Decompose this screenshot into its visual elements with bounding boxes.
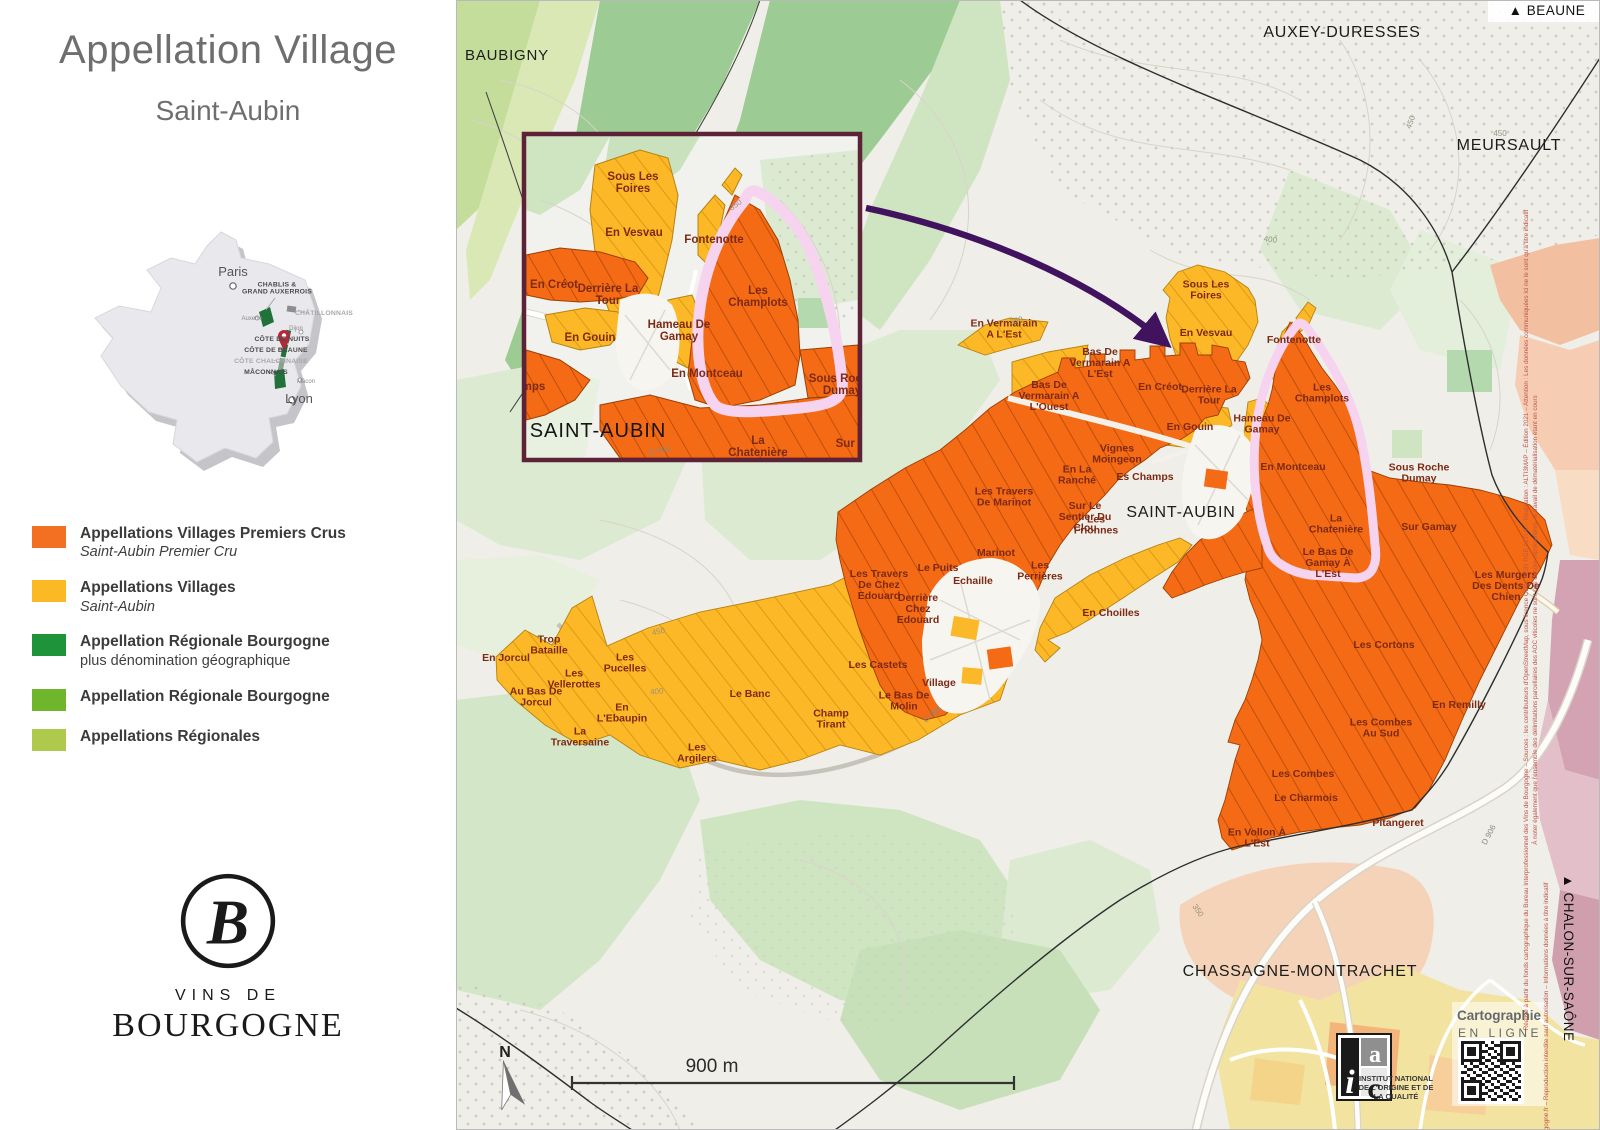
map-label: SAINT-AUBIN: [530, 420, 667, 442]
legend-sublabel: Saint-Aubin Premier Cru: [80, 543, 346, 562]
map-label: Marinot: [977, 547, 1015, 559]
map-label: En Gouin: [564, 332, 615, 344]
svg-text:B: B: [206, 887, 249, 957]
map-label: 450: [1493, 129, 1507, 138]
legend-label: Appellations Villages: [80, 578, 236, 597]
legend-label: Appellation Régionale Bourgogne: [80, 632, 330, 651]
map-label: Les Cortons: [1353, 639, 1414, 651]
legend-sublabel: plus dénomination géographique: [80, 652, 330, 671]
map-label: 900 m: [686, 1056, 739, 1077]
legend-item-villages: Appellations Villages Saint-Aubin: [32, 578, 432, 616]
map-label: En Choilles: [1082, 607, 1139, 619]
map-label: N: [499, 1044, 511, 1061]
map-label: En Vesvau: [605, 227, 663, 239]
legend-sublabel: Saint-Aubin: [80, 598, 236, 617]
map-label: ▲ BEAUNE: [1509, 3, 1586, 18]
map-label: Es Champs: [1116, 471, 1173, 483]
map-label: Echaille: [953, 575, 993, 587]
legend-item-regionale-denomination: Appellation Régionale Bourgogne plus dén…: [32, 632, 432, 670]
map-label: Les TraversDe Marinot: [975, 486, 1034, 509]
map-label: En Gouin: [1167, 421, 1214, 433]
map-label: Fontenotte: [684, 234, 743, 246]
map-label: En Montceau: [1260, 461, 1325, 473]
map-label: CÔTE DE NUITS: [254, 334, 309, 343]
map-label: Fontenotte: [1267, 334, 1321, 346]
logo-line2: BOURGOGNE: [0, 1007, 456, 1045]
map-label: CÔTE DE BEAUNE: [244, 345, 308, 354]
map-label: En Créot: [530, 279, 578, 291]
map-label: À noter également que l'ensemble des dél…: [1530, 395, 1539, 845]
map-label: En Jorcul: [482, 652, 530, 664]
map-label: En Vesvau: [1180, 327, 1233, 339]
legend-item-regionales: Appellations Régionales: [32, 727, 432, 751]
map-label: Le Charmois: [1274, 792, 1338, 804]
map-label: Les Combes: [1272, 768, 1335, 780]
france-locator-map: ParisLyonCHABLIS &GRAND AUXERROISCHÂTILL…: [73, 218, 383, 510]
map-label: Lyon: [285, 391, 313, 406]
map-label: Le Banc: [730, 688, 771, 700]
legend-swatch-regionale: [32, 689, 66, 711]
map-label: Dijon: [289, 326, 303, 332]
map-label: En Montceau: [671, 368, 743, 380]
map-label: Pitangeret: [1372, 817, 1424, 829]
legend-swatch-regionale-denomination: [32, 634, 66, 656]
poster: Appellation Village Saint-Aubin: [0, 0, 1600, 1130]
map-label: En Remilly: [1432, 699, 1486, 711]
map-label: Village: [922, 677, 956, 689]
map-label: Mâcon: [297, 379, 315, 385]
legend-label: Appellations Villages Premiers Crus: [80, 524, 346, 543]
legend-item-premier-cru: Appellations Villages Premiers Crus Sain…: [32, 524, 432, 562]
legend-label: Appellation Régionale Bourgogne: [80, 687, 330, 706]
inset-detail-map: Sous LesFoiresEn VesvauEn CréotDerrière …: [483, 134, 897, 460]
legend: Appellations Villages Premiers Crus Sain…: [32, 524, 432, 767]
map-label: © www.vins-bourgogne.fr – Reproduction i…: [1542, 882, 1550, 1130]
map-label: Réalisé à partir du fonds cartographique…: [1521, 209, 1530, 1030]
map-label: CÔTE CHALONNAISE: [234, 356, 308, 365]
map-label: a: [1369, 1042, 1381, 1068]
map-label: MEURSAULT: [1457, 137, 1562, 154]
map-label: ChampTirant: [813, 708, 849, 731]
paris-dot: [230, 283, 236, 289]
map-label: Sur Gamay: [1401, 521, 1457, 533]
map-label: ▲ CHALON-SUR-SAÔNE: [1561, 874, 1576, 1041]
logo-line1: VINS DE: [0, 987, 456, 1005]
qr-code: [1458, 1038, 1524, 1104]
map-label: 400: [650, 686, 665, 696]
legend-swatch-villages: [32, 580, 66, 602]
map-label: CHASSAGNE-MONTRACHET: [1183, 963, 1418, 980]
map-label: MÂCONNAIS: [244, 367, 288, 376]
legend-swatch-premier-cru: [32, 526, 66, 548]
map-label: BAUBIGNY: [465, 47, 549, 64]
legend-label: Appellations Régionales: [80, 727, 260, 746]
info-panel: Appellation Village Saint-Aubin: [0, 0, 456, 1130]
vins-de-bourgogne-logo: B VINS DE BOURGOGNE: [0, 870, 456, 1045]
map-label: Les Castets: [849, 659, 908, 671]
legend-item-regionale: Appellation Régionale Bourgogne: [32, 687, 432, 711]
map-label: CHÂTILLONNAIS: [295, 308, 353, 317]
map-label: 400: [1263, 234, 1278, 245]
map-label: i: [1345, 1064, 1355, 1101]
saint-aubin-parcel-map: BAUBIGNYAUXEY-DURESSESMEURSAULTSAINT-AUB…: [456, 0, 1600, 1130]
map-label: En LaRanché: [1058, 464, 1096, 487]
map-label: Le Puits: [918, 562, 959, 574]
map-label: En Créot: [1138, 381, 1182, 393]
map-label: Paris: [218, 264, 248, 279]
map-label: SAINT-AUBIN: [1126, 504, 1235, 521]
map-label: c: [1367, 1072, 1380, 1105]
page-title: Appellation Village: [10, 28, 446, 73]
page-subtitle: Saint-Aubin: [10, 95, 446, 127]
map-label: Auxerre: [241, 316, 263, 322]
bourgogne-b-icon: B: [177, 870, 279, 972]
map-label: AUXEY-DURESSES: [1263, 24, 1420, 41]
legend-swatch-regionales: [32, 729, 66, 751]
